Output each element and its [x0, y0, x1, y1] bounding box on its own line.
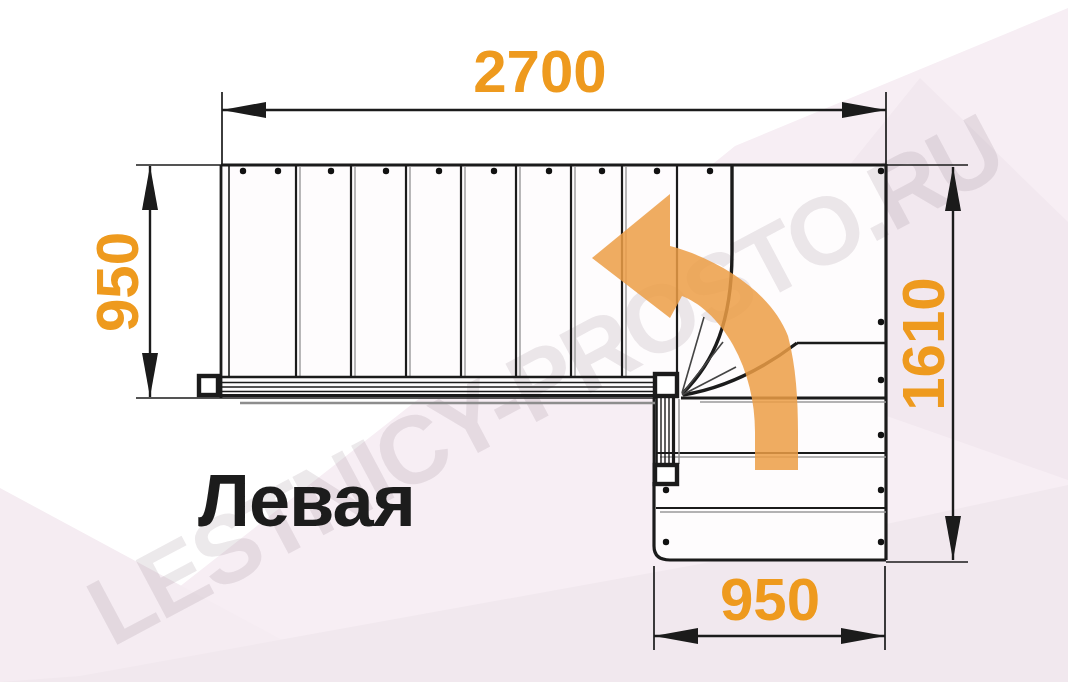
arrowhead-icon	[222, 102, 266, 118]
dimension-label-right: 1610	[894, 234, 954, 454]
newel-post	[199, 376, 218, 395]
dimension-label-left: 950	[88, 172, 148, 392]
handrail-top-flight	[197, 377, 655, 403]
arrowhead-icon	[654, 628, 698, 644]
handrail-bottom-flight	[657, 397, 680, 465]
extension-lines	[136, 92, 968, 650]
arrowhead-icon	[945, 516, 961, 560]
newel-post	[655, 374, 677, 396]
arrowhead-icon	[841, 628, 885, 644]
dimension-lines	[150, 110, 953, 636]
dimension-label-top: 2700	[430, 42, 650, 102]
arrowhead-icon	[842, 102, 886, 118]
arrowhead-icon	[945, 167, 961, 211]
stair-plan-diagram: LESTNICY-PROSTO.RU	[0, 0, 1068, 682]
stair-bottom-edge	[654, 482, 886, 560]
newel-post	[655, 465, 677, 484]
dimension-label-bottom: 950	[660, 570, 880, 630]
dimension-arrowheads	[142, 102, 961, 644]
plan-title: Левая	[198, 458, 415, 543]
